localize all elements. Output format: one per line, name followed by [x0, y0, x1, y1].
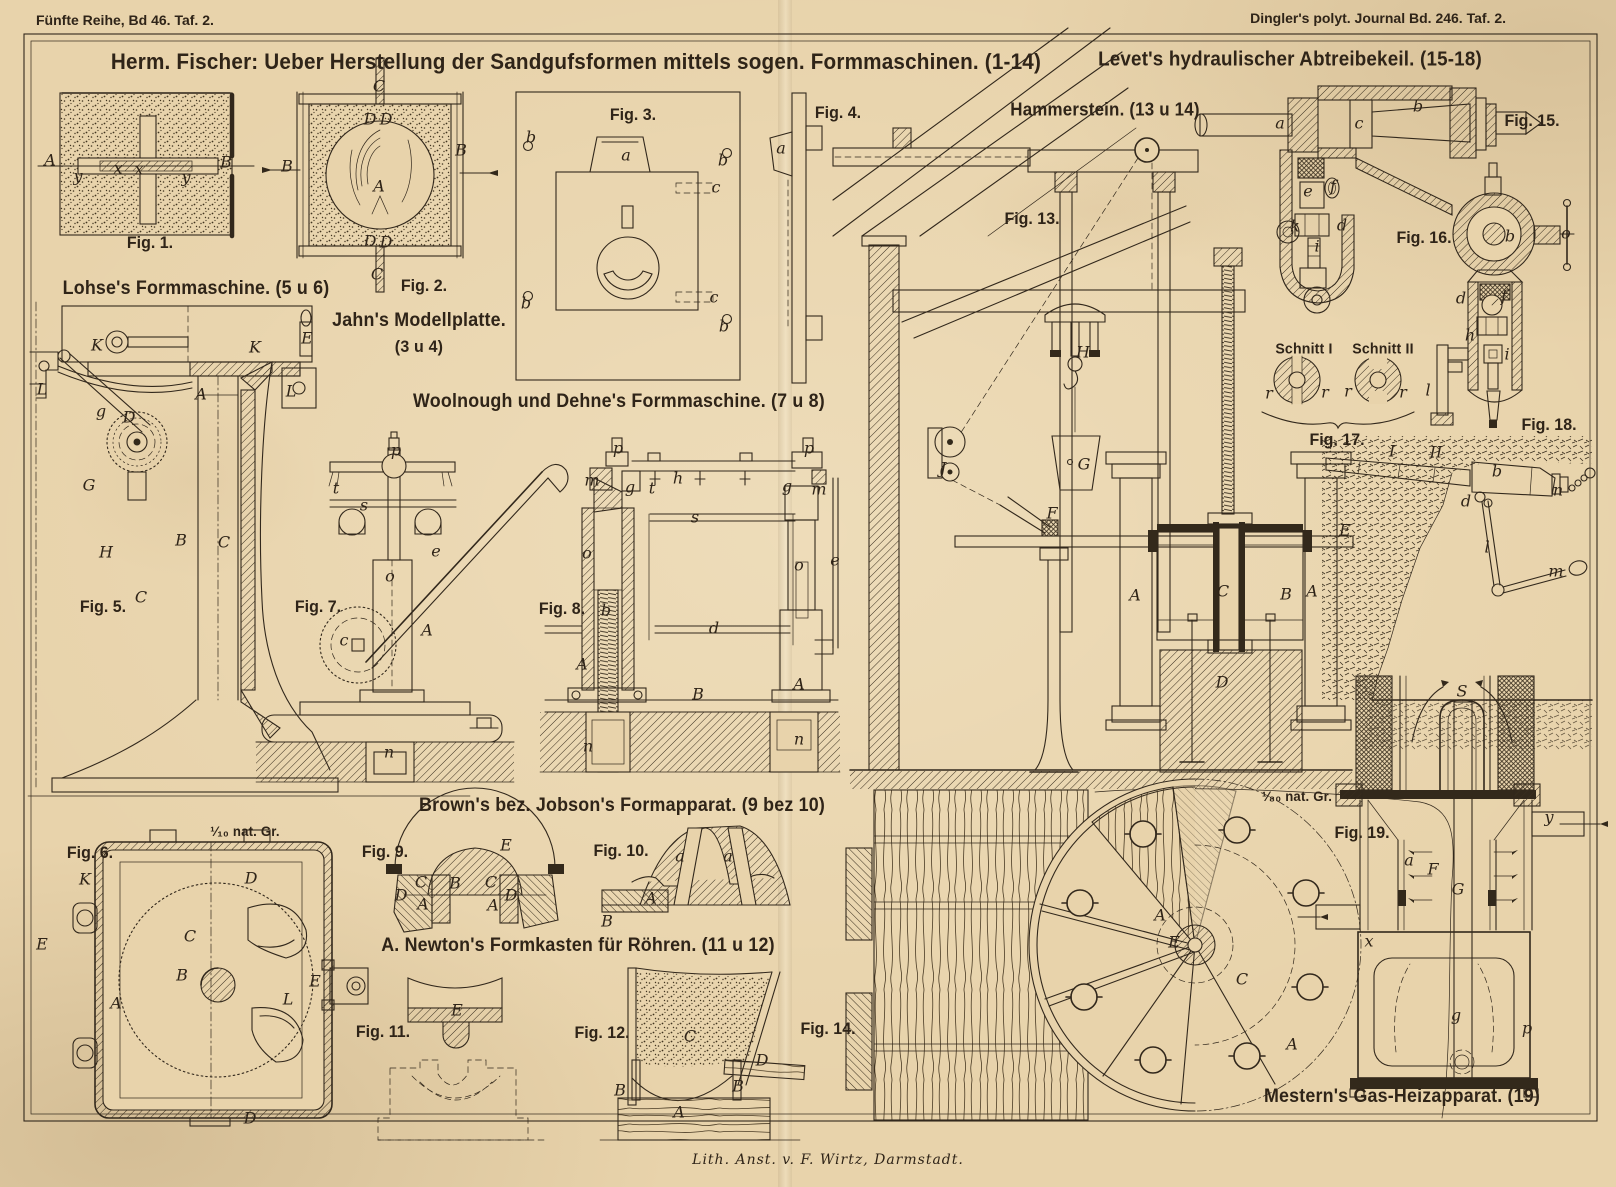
figure-number-label: Fig. 7.	[295, 597, 341, 617]
part-letter-label: A	[1286, 1035, 1298, 1054]
part-letter-label: b	[719, 317, 729, 336]
part-letter-label: s	[360, 496, 368, 515]
part-letter-label: y	[181, 168, 190, 187]
part-letter-label: b	[1505, 227, 1515, 246]
part-letter-label: A	[417, 895, 429, 914]
title-jahn: Jahn's Modellplatte.	[332, 310, 506, 332]
label-scale-10: ¹⁄₁₀ nat. Gr.	[210, 823, 279, 839]
part-letter-label: m	[1548, 562, 1563, 581]
lithograph-plate: Fünfte Reihe, Bd 46. Taf. 2. Dingler's p…	[0, 0, 1616, 1187]
label-schnitt-2: Schnitt II	[1352, 341, 1413, 358]
title-woolnough: Woolnough und Dehne's Formmaschine. (7 u…	[413, 391, 825, 413]
part-letter-label: A	[1154, 906, 1166, 925]
figure-number-label: Fig. 15.	[1504, 111, 1559, 131]
part-letter-label: K	[79, 870, 91, 889]
part-letter-label: E	[309, 972, 321, 991]
part-letter-label: F	[1046, 504, 1057, 523]
title-lohse: Lohse's Formmaschine. (5 u 6)	[63, 278, 330, 300]
part-letter-label: B	[281, 157, 293, 176]
part-letter-label: n	[794, 730, 804, 749]
part-letter-label: D	[1216, 673, 1229, 692]
part-letter-label: f	[1501, 287, 1507, 306]
part-letter-label: o	[582, 544, 592, 563]
part-letter-label: I	[1389, 442, 1395, 461]
part-letter-label: H	[99, 543, 113, 562]
part-letter-label: p	[804, 439, 814, 458]
part-letter-label: o	[794, 556, 804, 575]
part-letter-label: e	[431, 542, 440, 561]
figure-number-label: Fig. 14.	[800, 1019, 855, 1039]
part-letter-label: a	[776, 139, 786, 158]
part-letter-label: A	[373, 177, 385, 196]
part-letter-label: l	[1484, 538, 1489, 557]
figure-number-label: Fig. 1.	[127, 233, 173, 253]
part-letter-label: k	[1290, 217, 1300, 236]
part-letter-label: b	[718, 151, 728, 170]
part-letter-label: E	[301, 329, 313, 348]
part-letter-label: f	[1330, 177, 1336, 196]
figure-number-label: Fig. 10.	[593, 841, 648, 861]
part-letter-label: A	[487, 896, 499, 915]
part-letter-label: a	[675, 847, 685, 866]
part-letter-label: A	[1306, 582, 1318, 601]
part-letter-label: C	[684, 1027, 696, 1046]
part-letter-label: c	[1355, 114, 1364, 133]
part-letter-label: J	[940, 459, 946, 478]
part-letter-label: d	[709, 619, 719, 638]
part-letter-label: B	[1280, 585, 1292, 604]
part-letter-label: B	[601, 912, 613, 931]
part-letter-label: D	[364, 110, 377, 129]
part-letter-label: B	[176, 966, 188, 985]
part-letter-label: a	[1275, 114, 1285, 133]
part-letter-label: h	[1465, 326, 1475, 345]
part-letter-label: a	[621, 146, 631, 165]
part-letter-label: B	[732, 1077, 744, 1096]
part-letter-label: c	[710, 288, 719, 307]
part-letter-label: K	[249, 338, 261, 357]
part-letter-label: F	[1427, 860, 1438, 879]
part-letter-label: B	[220, 153, 232, 172]
part-letter-label: H	[1076, 343, 1090, 362]
part-letter-label: m	[584, 471, 599, 490]
part-letter-label: C	[373, 77, 385, 96]
part-letter-label: b	[1413, 97, 1423, 116]
title-brown: Brown's bez. Jobson's Formapparat. (9 be…	[419, 795, 825, 817]
part-letter-label: r	[1344, 382, 1352, 401]
figure-number-label: Fig. 17.	[1309, 430, 1364, 450]
figure-number-label: Fig. 2.	[401, 276, 447, 296]
part-letter-label: G	[83, 476, 96, 495]
figure-number-label: Fig. 13.	[1004, 209, 1059, 229]
part-letter-label: K	[91, 336, 103, 355]
figure-number-label: Fig. 6.	[67, 843, 113, 863]
part-letter-label: B	[449, 874, 461, 893]
part-letter-label: D	[395, 886, 408, 905]
part-letter-label: p	[613, 439, 623, 458]
part-letter-label: D	[123, 408, 136, 427]
part-letter-label: x	[113, 159, 122, 178]
part-letter-label: i	[1504, 345, 1509, 364]
figure-number-label: Fig. 12.	[574, 1023, 629, 1043]
part-letter-label: i	[1314, 237, 1319, 256]
part-letter-label: g	[625, 478, 635, 497]
part-letter-label: A	[44, 151, 56, 170]
part-letter-label: B	[455, 141, 467, 160]
part-letter-label: p	[1522, 1019, 1532, 1038]
part-letter-label: B	[692, 685, 704, 704]
part-letter-label: E	[500, 836, 512, 855]
part-letter-label: G	[1452, 880, 1465, 899]
part-letter-label: t	[649, 479, 655, 498]
title-levet: Levet's hydraulischer Abtreibekeil. (15-…	[1098, 49, 1482, 72]
part-letter-label: r	[1399, 383, 1407, 402]
part-letter-label: a	[1404, 851, 1414, 870]
part-letter-label: C	[371, 265, 383, 284]
label-schnitt-1: Schnitt I	[1275, 341, 1332, 358]
part-letter-label: s	[691, 508, 699, 527]
part-letter-label: d	[1337, 216, 1347, 235]
part-letter-label: A	[793, 675, 805, 694]
part-letter-label: o	[1561, 224, 1571, 243]
figure-number-label: Fig. 19.	[1334, 823, 1389, 843]
part-letter-label: n	[1553, 481, 1563, 500]
part-letter-label: t	[333, 479, 339, 498]
part-letter-label: A	[421, 621, 433, 640]
part-letter-label: d	[1456, 289, 1466, 308]
part-letter-label: x	[134, 160, 143, 179]
part-letter-label: C	[415, 873, 427, 892]
part-letter-label: d	[1461, 492, 1471, 511]
figure-number-label: Fig. 4.	[815, 103, 861, 123]
part-letter-label: l	[1425, 381, 1430, 400]
part-letter-label: S	[1457, 682, 1468, 701]
part-letter-label: D	[756, 1051, 769, 1070]
part-letter-label: p	[391, 441, 401, 460]
part-letter-label: y	[1544, 808, 1553, 827]
part-letter-label: m	[811, 480, 826, 499]
part-letter-label: y	[73, 167, 82, 186]
part-letter-label: L	[37, 380, 48, 399]
part-letter-label: h	[673, 469, 683, 488]
part-letter-label: A	[110, 994, 122, 1013]
title-hammerstein: Hammerstein. (13 u 14)	[1010, 100, 1199, 121]
title-main: Herm. Fischer: Ueber Herstellung der San…	[111, 49, 1041, 75]
figure-number-label: Fig. 3.	[610, 105, 656, 125]
part-letter-label: C	[485, 873, 497, 892]
part-letter-label: c	[712, 178, 721, 197]
part-letter-label: A	[645, 889, 657, 908]
part-letter-label: C	[1217, 582, 1229, 601]
part-letter-label: D	[364, 232, 377, 251]
part-letter-label: c	[340, 631, 349, 650]
part-letter-label: B	[614, 1081, 626, 1100]
part-letter-label: g	[1451, 1006, 1461, 1025]
part-letter-label: D	[380, 233, 393, 252]
part-letter-label: g	[782, 477, 792, 496]
part-letter-label: b	[601, 601, 611, 620]
part-letter-label: L	[286, 382, 297, 401]
part-letter-label: E	[1339, 521, 1351, 540]
part-letter-label: G	[1078, 455, 1091, 474]
part-letter-label: e	[830, 551, 839, 570]
figure-number-label: Fig. 8.	[539, 599, 585, 619]
part-letter-label: g	[96, 402, 106, 421]
title-newton: A. Newton's Formkasten für Röhren. (11 u…	[381, 935, 775, 957]
part-letter-label: b	[521, 294, 531, 313]
part-letter-label: A	[1129, 586, 1141, 605]
part-letter-label: L	[283, 990, 294, 1009]
part-letter-label: r	[1321, 383, 1329, 402]
label-scale-80: ¹⁄₈₀ nat. Gr.	[1262, 788, 1332, 804]
part-letter-label: C	[184, 927, 196, 946]
part-letter-label: r	[1265, 384, 1273, 403]
title-mestern: Mestern's Gas-Heizapparat. (19)	[1264, 1086, 1540, 1108]
part-letter-label: D	[244, 1109, 257, 1128]
part-letter-label: n	[583, 737, 593, 756]
part-letter-label: A	[195, 385, 207, 404]
part-letter-label: o	[385, 567, 395, 586]
part-letter-label: x	[1364, 932, 1373, 951]
part-letter-label: a	[723, 847, 733, 866]
part-letter-label: C	[1236, 970, 1248, 989]
part-letter-label: b	[526, 128, 536, 147]
part-letter-label: E	[36, 935, 48, 954]
part-letter-label: b	[1492, 462, 1502, 481]
part-letter-label: C	[135, 588, 147, 607]
part-letter-label: D	[245, 869, 258, 888]
figure-number-label: Fig. 11.	[356, 1022, 410, 1042]
part-letter-label: A	[673, 1103, 685, 1122]
part-letter-label: D	[505, 886, 518, 905]
part-letter-label: n	[384, 743, 394, 762]
part-letter-label: C	[218, 533, 230, 552]
part-letter-label: II	[1430, 443, 1443, 462]
figure-number-label: Fig. 16.	[1396, 228, 1451, 248]
part-letter-label: E	[451, 1001, 463, 1020]
part-letter-label: E	[1168, 933, 1180, 952]
part-letter-label: e	[1303, 182, 1312, 201]
figure-number-label: Fig. 18.	[1521, 415, 1576, 435]
part-letter-label: D	[380, 110, 393, 129]
text-labels-layer: Herm. Fischer: Ueber Herstellung der San…	[0, 0, 1616, 1187]
part-letter-label: B	[175, 531, 187, 550]
figure-number-label: Fig. 9.	[362, 842, 408, 862]
part-letter-label: A	[576, 655, 588, 674]
title-jahn-figs: (3 u 4)	[395, 337, 443, 357]
figure-number-label: Fig. 5.	[80, 597, 126, 617]
